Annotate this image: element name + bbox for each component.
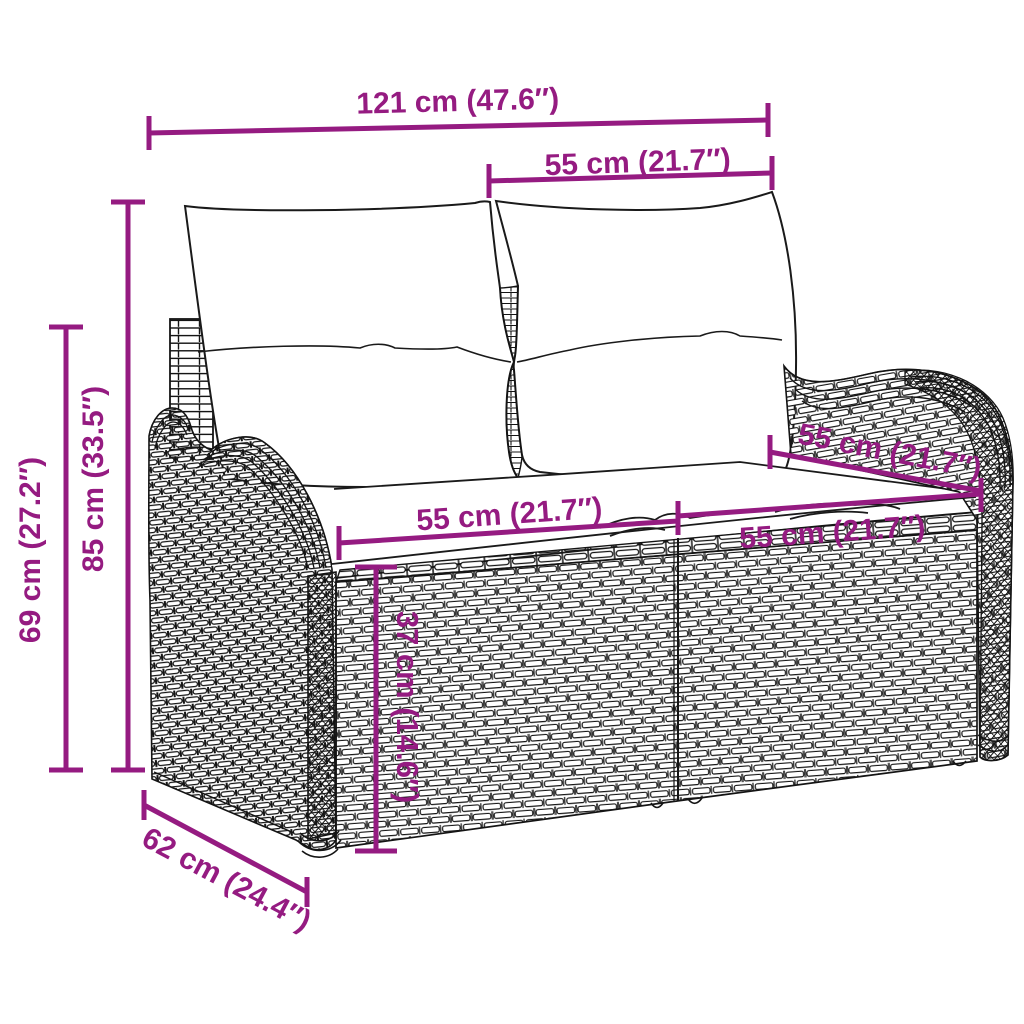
svg-text:55 cm (21.7″): 55 cm (21.7″) xyxy=(544,143,731,182)
svg-text:85 cm (33.5″): 85 cm (33.5″) xyxy=(77,386,110,572)
svg-text:121 cm (47.6″): 121 cm (47.6″) xyxy=(356,82,560,120)
svg-text:69 cm (27.2″): 69 cm (27.2″) xyxy=(14,457,47,643)
svg-text:37 cm (14.6″): 37 cm (14.6″) xyxy=(390,611,425,803)
